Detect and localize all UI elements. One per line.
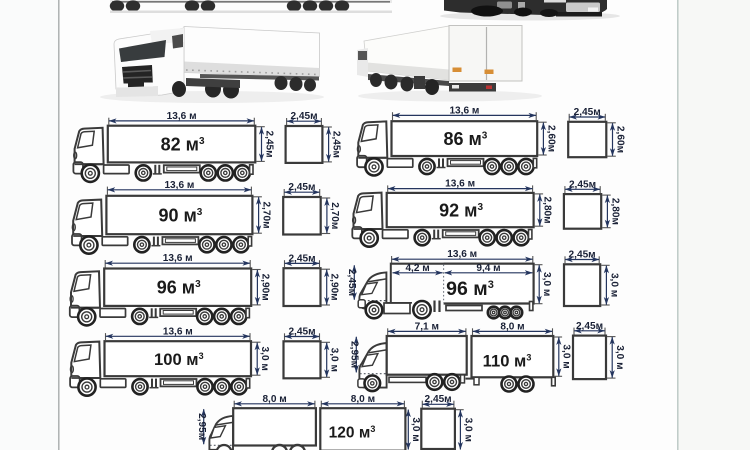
svg-text:2,45м: 2,45м	[288, 327, 315, 338]
svg-text:13,6 м: 13,6 м	[163, 253, 193, 264]
svg-text:2,45м: 2,45м	[288, 182, 315, 193]
svg-text:2,95м: 2,95м	[196, 413, 207, 440]
svg-text:9,4 м: 9,4 м	[476, 263, 500, 274]
svg-text:2,45м: 2,45м	[569, 179, 596, 190]
svg-text:8,0 м: 8,0 м	[351, 394, 375, 405]
svg-text:4,2 м: 4,2 м	[405, 263, 429, 274]
svg-text:2,45м: 2,45м	[576, 321, 603, 332]
svg-text:3,0 м: 3,0 м	[614, 345, 625, 369]
svg-text:2,45м: 2,45м	[288, 253, 315, 264]
svg-text:2,80м: 2,80м	[542, 197, 553, 224]
svg-text:92 м3: 92 м3	[439, 201, 483, 221]
svg-text:2,70м: 2,70м	[261, 201, 272, 228]
svg-text:2,45м: 2,45м	[290, 111, 317, 122]
svg-text:13,6 м: 13,6 м	[447, 249, 477, 260]
svg-text:96 м3: 96 м3	[157, 278, 201, 298]
svg-text:2,60м: 2,60м	[614, 126, 625, 153]
svg-text:2,45м: 2,45м	[331, 131, 342, 158]
svg-text:2,90м: 2,90м	[259, 274, 270, 301]
svg-text:2,80м: 2,80м	[609, 198, 620, 225]
svg-text:82 м3: 82 м3	[161, 135, 205, 155]
svg-text:2,45м: 2,45м	[346, 269, 357, 296]
svg-text:3,0 м: 3,0 м	[561, 344, 572, 368]
svg-text:110 м3: 110 м3	[483, 352, 532, 371]
svg-text:3,0 м: 3,0 м	[541, 272, 552, 296]
svg-text:2,95м: 2,95м	[349, 341, 360, 368]
svg-text:100 м3: 100 м3	[154, 350, 204, 369]
svg-text:3,0 м: 3,0 м	[608, 273, 619, 297]
svg-text:2,90м: 2,90м	[329, 274, 340, 301]
svg-text:3,0 м: 3,0 м	[329, 348, 340, 372]
svg-text:2,45м: 2,45м	[574, 107, 601, 118]
svg-text:3,0 м: 3,0 м	[259, 347, 270, 371]
svg-text:90 м3: 90 м3	[158, 206, 202, 226]
svg-text:120 м3: 120 м3	[329, 424, 376, 442]
svg-text:13,6 м: 13,6 м	[163, 326, 193, 337]
svg-text:2,70м: 2,70м	[329, 202, 340, 229]
svg-text:2,45м: 2,45м	[425, 394, 452, 405]
svg-text:8,0 м: 8,0 м	[262, 394, 286, 405]
svg-text:86 м3: 86 м3	[443, 129, 487, 149]
svg-text:13,6 м: 13,6 м	[445, 179, 475, 190]
svg-text:13,6 м: 13,6 м	[449, 105, 479, 116]
svg-text:2,45м: 2,45м	[569, 250, 596, 261]
svg-text:3,0 м: 3,0 м	[462, 418, 473, 442]
svg-text:13,6 м: 13,6 м	[164, 180, 194, 191]
svg-text:8,0 м: 8,0 м	[500, 321, 524, 332]
svg-text:3,0 м: 3,0 м	[410, 417, 421, 441]
svg-text:2,45м: 2,45м	[263, 131, 274, 158]
svg-text:7,1 м: 7,1 м	[415, 321, 439, 332]
svg-text:96 м3: 96 м3	[446, 278, 494, 300]
svg-text:2,60м: 2,60м	[545, 125, 556, 152]
svg-text:13,6 м: 13,6 м	[167, 111, 197, 122]
